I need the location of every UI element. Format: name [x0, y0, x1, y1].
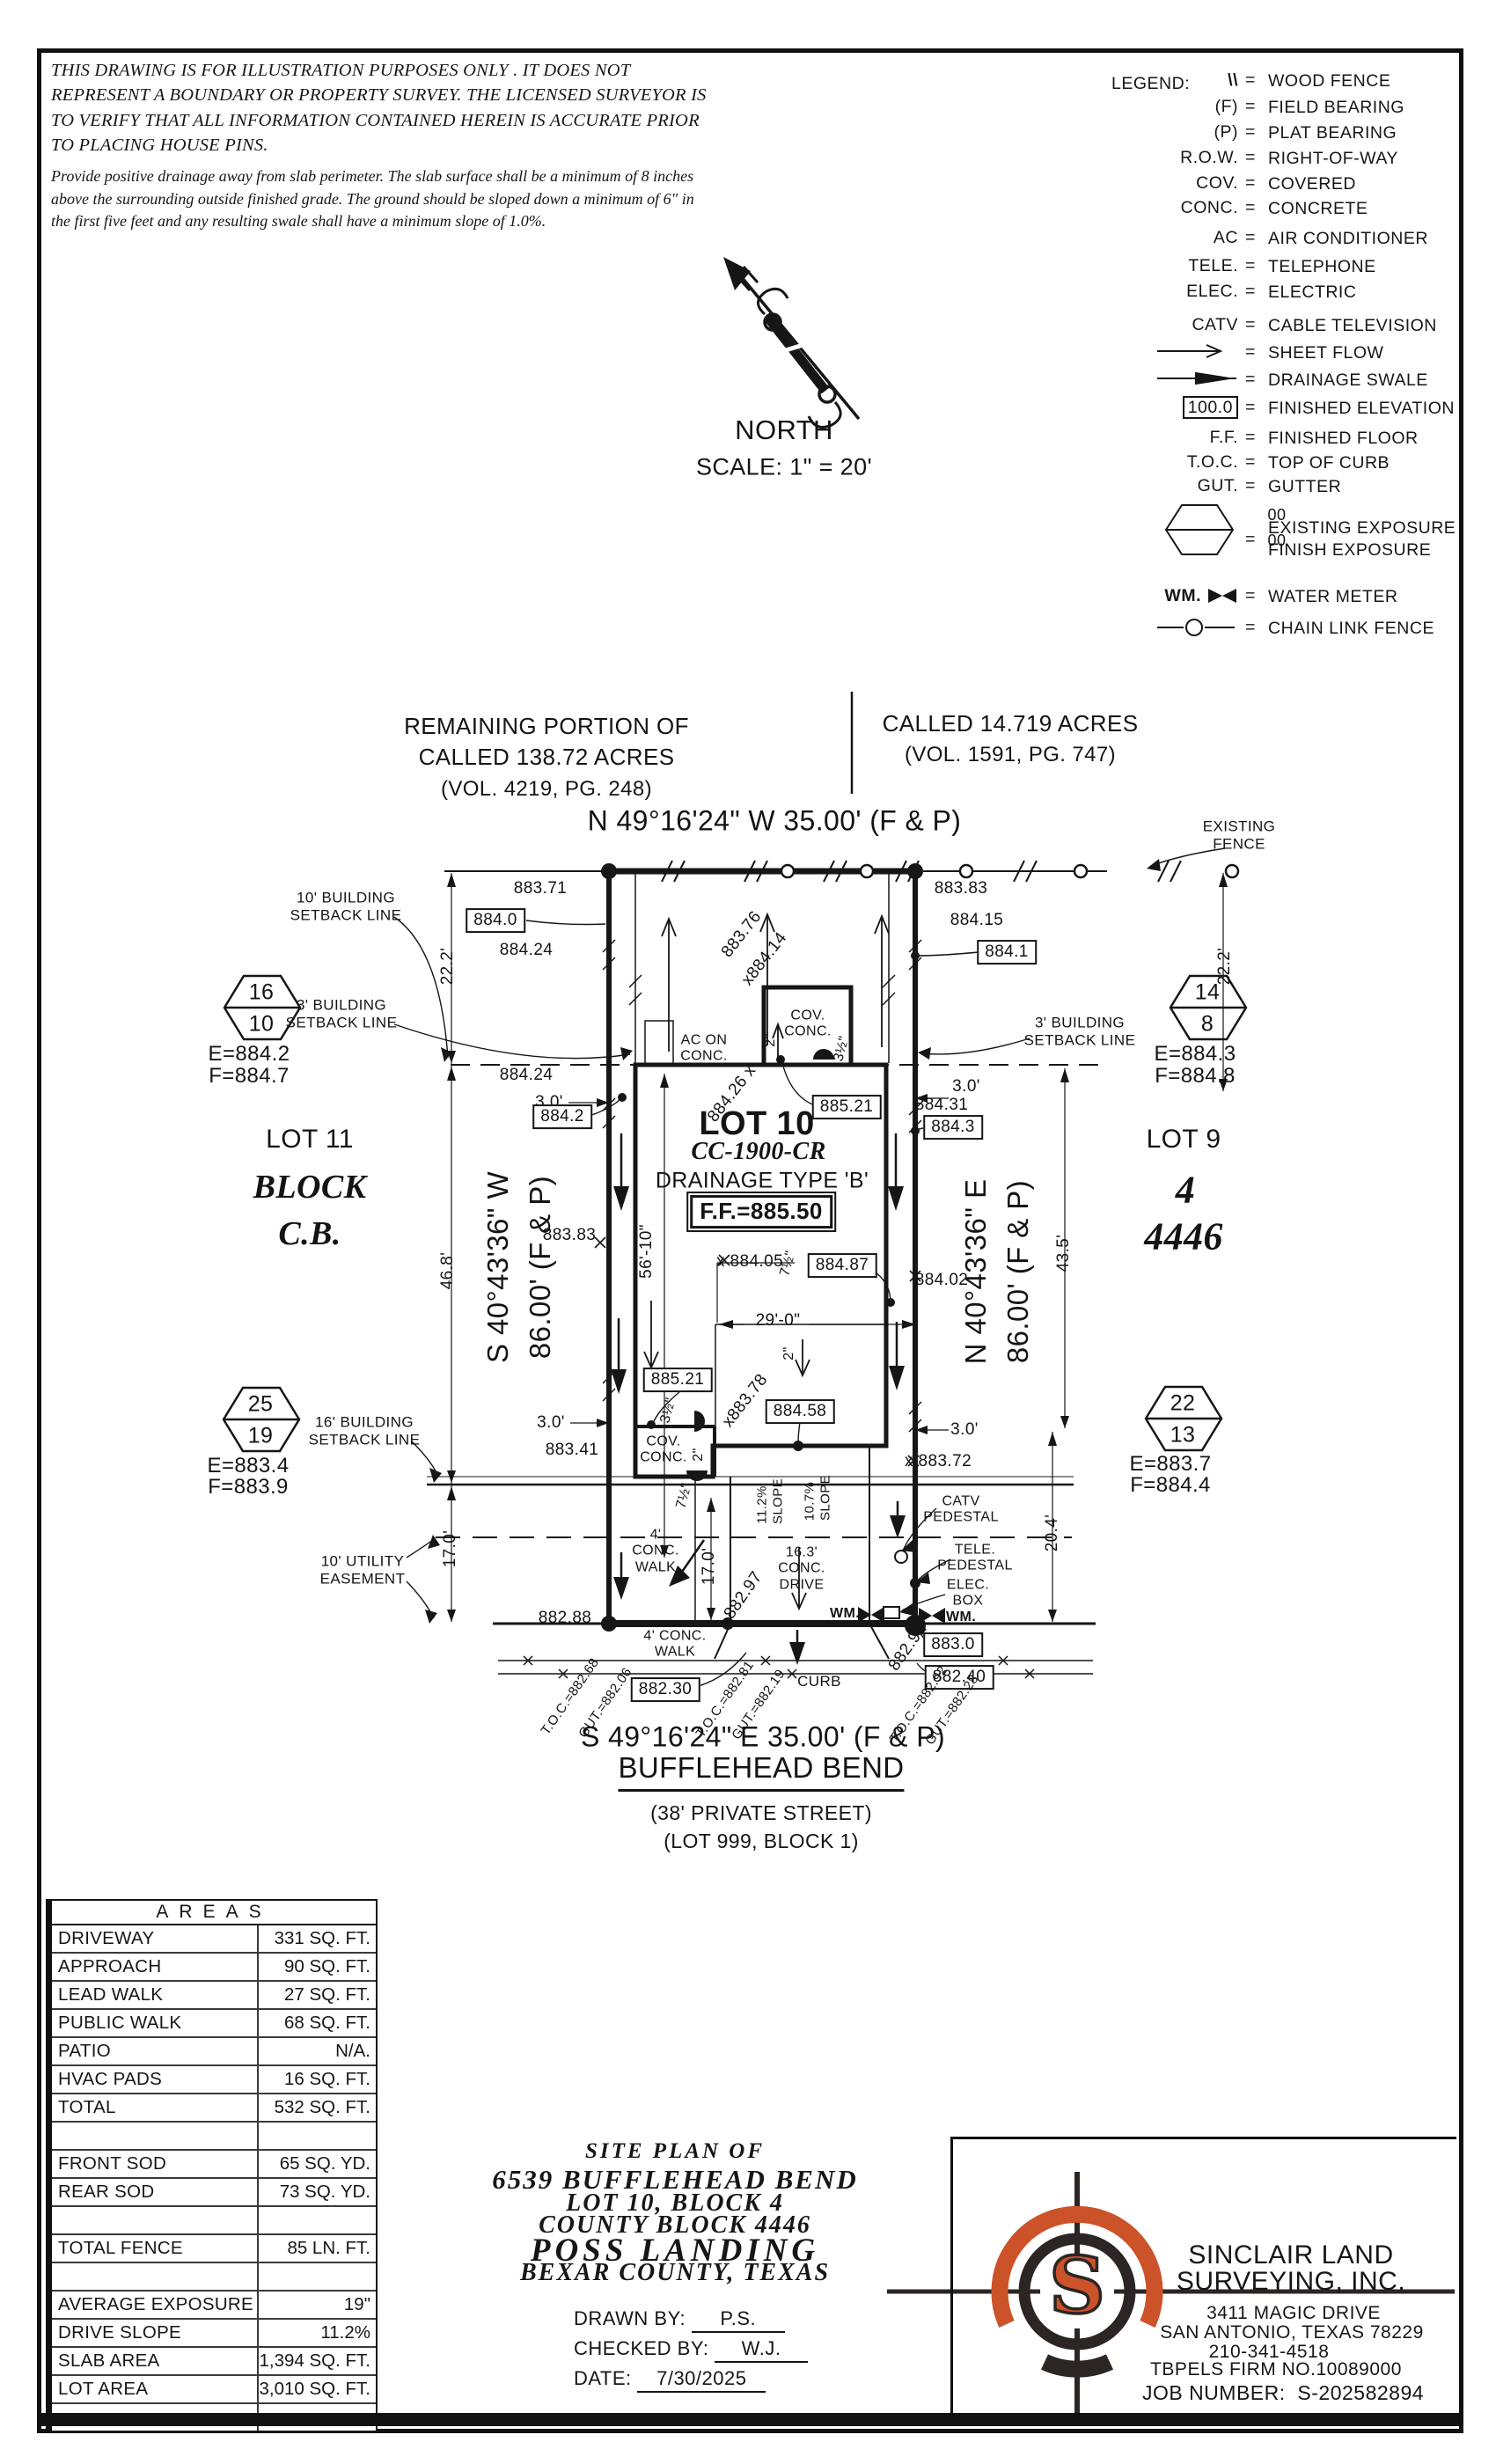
areas-row: PATION/A.	[52, 2038, 376, 2066]
street-lot-block: (LOT 999, BLOCK 1)	[664, 1830, 859, 1852]
legend-row: \\=WOOD FENCE	[1104, 70, 1458, 93]
areas-row-value: 11.2%	[259, 2320, 376, 2346]
drainage-swale-icon	[1155, 370, 1238, 386]
legend-row: AC=AIR CONDITIONER	[1104, 228, 1458, 251]
plan-label: 17.0'	[441, 1530, 460, 1568]
context-called: (VOL. 1591, PG. 747)	[905, 743, 1116, 767]
areas-table-title: AREAS	[52, 1901, 376, 1925]
plan-label: 884.02	[915, 1271, 969, 1290]
areas-row-value	[259, 2123, 376, 2149]
plan-label: 883.83	[543, 1226, 597, 1245]
neighbor-right-lot: LOT 9	[1147, 1125, 1221, 1155]
lot-ff: F.F.=885.50	[690, 1195, 832, 1228]
checked-by-value: W.J.	[715, 2337, 808, 2363]
areas-row: AVERAGE EXPOSURE19"	[52, 2292, 376, 2320]
areas-row-label: PUBLIC WALK	[52, 2010, 259, 2036]
areas-row-value: 27 SQ. FT.	[259, 1982, 376, 2008]
exposure-nw-bottom: 10	[249, 1012, 275, 1038]
context-called: CALLED 14.719 ACRES	[883, 711, 1139, 737]
surveyor-name: SINCLAIR LAND	[1188, 2240, 1393, 2270]
chain-link-fence-icon	[1155, 619, 1238, 636]
areas-row-label: TOTAL FENCE	[52, 2235, 259, 2262]
plan-label: SLOPE	[818, 1475, 832, 1521]
plan-label: 17.0'	[700, 1548, 719, 1586]
areas-row	[52, 2123, 376, 2151]
logo-letter: S	[1049, 2240, 1105, 2331]
areas-row-label: DRIVE SLOPE	[52, 2320, 259, 2346]
disclaimer: THIS DRAWING IS FOR ILLUSTRATION PURPOSE…	[51, 58, 707, 233]
areas-row	[52, 2263, 376, 2292]
areas-row-label: REAR SOD	[52, 2179, 259, 2205]
areas-row-label: LEAD WALK	[52, 1982, 259, 2008]
legend-row: F.F.=FINISHED FLOOR	[1104, 428, 1458, 451]
exposure-se-top: 22	[1170, 1391, 1196, 1417]
lot-drainage: DRAINAGE TYPE 'B'	[656, 1169, 869, 1194]
areas-row-value: 85 LN. FT.	[259, 2235, 376, 2262]
areas-row-value	[259, 2207, 376, 2233]
plan-label: 882.88	[539, 1609, 592, 1628]
plan-label: 883.83	[935, 879, 988, 898]
plan-label: COV. CONC.	[640, 1434, 687, 1467]
north-arrow-icon	[723, 257, 859, 427]
legend-row: CONC.=CONCRETE	[1104, 198, 1458, 221]
site-plan-page: NORTHSCALE: 1" = 20'REMAINING PORTION OF…	[0, 0, 1496, 2464]
areas-row-label: SLAB AREA	[52, 2348, 259, 2374]
plan-label: 56'-10"	[637, 1224, 656, 1279]
legend-row: 100.0=FINISHED ELEVATION	[1104, 398, 1458, 421]
areas-row: TOTAL FENCE85 LN. FT.	[52, 2235, 376, 2263]
context-remaining: REMAINING PORTION OF	[404, 714, 689, 740]
areas-row-value: 331 SQ. FT.	[259, 1925, 376, 1952]
drawn-by-value: P.S.	[692, 2307, 785, 2333]
areas-row-value: 65 SQ. YD.	[259, 2151, 376, 2177]
street-type: (38' PRIVATE STREET)	[650, 1801, 872, 1824]
legend-row: =SHEET FLOW	[1104, 342, 1458, 365]
scale-label: SCALE: 1" = 20'	[696, 453, 872, 480]
title-line: SITE PLAN OF	[585, 2139, 765, 2164]
plan-label: 2"	[691, 1448, 707, 1461]
exposure-se-f: F=884.4	[1130, 1473, 1211, 1498]
plan-label: 16.3' CONC. DRIVE	[778, 1544, 825, 1593]
plan-label: 3.0'	[952, 1077, 980, 1096]
bearing-north: N 49°16'24" W 35.00' (F & P)	[588, 805, 962, 838]
plan-label: 884.0	[466, 908, 525, 933]
neighbor-right-block: 4	[1176, 1169, 1195, 1214]
plan-label: 4' CONC. WALK	[632, 1527, 679, 1575]
exposure-se-bottom: 13	[1170, 1423, 1196, 1448]
areas-row-value: N/A.	[259, 2038, 376, 2064]
plan-label: 3' BUILDING SETBACK LINE	[1024, 1014, 1136, 1048]
legend-row: COV.=COVERED	[1104, 173, 1458, 196]
areas-row-value: 1,394 SQ. FT.	[259, 2348, 376, 2374]
areas-row-label: TOTAL	[52, 2094, 259, 2121]
areas-row-value: 19"	[259, 2292, 376, 2318]
plan-label: 11.2%	[754, 1485, 769, 1523]
areas-row: APPROACH90 SQ. FT.	[52, 1954, 376, 1982]
areas-row: PUBLIC WALK68 SQ. FT.	[52, 2010, 376, 2038]
neighbor-left-block: BLOCK	[253, 1169, 367, 1207]
catv-pedestal-icon	[895, 1551, 907, 1563]
exposure-sw-bottom: 19	[248, 1424, 274, 1449]
areas-row: FRONT SOD65 SQ. YD.	[52, 2151, 376, 2179]
exposure-ne-f: F=884.8	[1155, 1064, 1236, 1089]
plan-label: 884.87	[808, 1253, 877, 1278]
plan-label: 16' BUILDING SETBACK LINE	[309, 1413, 421, 1448]
plan-label: 20.4'	[1043, 1514, 1062, 1552]
areas-row-value: 73 SQ. YD.	[259, 2179, 376, 2205]
areas-table-body: DRIVEWAY331 SQ. FT.APPROACH90 SQ. FT.LEA…	[52, 1925, 376, 2431]
plan-label: 3.0'	[950, 1420, 979, 1440]
context-remaining: CALLED 138.72 ACRES	[419, 744, 675, 771]
street-name: BUFFLEHEAD BEND	[618, 1751, 904, 1792]
surveyor-name: SURVEYING, INC.	[1177, 2267, 1405, 2297]
context-remaining: (VOL. 4219, PG. 248)	[441, 777, 652, 802]
areas-row: LOT AREA3,010 SQ. FT.	[52, 2376, 376, 2404]
surveyor-block-border-top	[950, 2137, 1456, 2139]
areas-row-label	[52, 2207, 259, 2233]
plan-label: CATV PEDESTAL	[923, 1494, 999, 1527]
plan-label: 43.5'	[1054, 1235, 1074, 1272]
legend-row: ELEC.=ELECTRIC	[1104, 282, 1458, 304]
plan-label: 884.58	[766, 1399, 835, 1424]
areas-row: LEAD WALK27 SQ. FT.	[52, 1982, 376, 2010]
plan-label: 885.21	[812, 1095, 882, 1119]
areas-row: DRIVE SLOPE11.2%	[52, 2320, 376, 2348]
water-meter-icon	[1206, 587, 1238, 605]
areas-table: AREAS DRIVEWAY331 SQ. FT.APPROACH90 SQ. …	[46, 1899, 378, 2432]
plan-label: 10' BUILDING SETBACK LINE	[290, 889, 402, 923]
legend: LEGEND: \\=WOOD FENCE (F)=FIELD BEARING …	[1104, 62, 1458, 642]
exposure-ne-top: 14	[1195, 980, 1221, 1006]
exposure-nw-e: E=884.2	[209, 1042, 290, 1067]
north-label: NORTH	[735, 414, 833, 446]
plan-label: x 883.72	[905, 1452, 972, 1471]
plan-label: SLOPE	[770, 1478, 785, 1524]
areas-row-label	[52, 2263, 259, 2290]
areas-row	[52, 2207, 376, 2235]
areas-row-value: 16 SQ. FT.	[259, 2066, 376, 2093]
plan-label: 29'-0"	[756, 1311, 801, 1331]
bearing-south: S 49°16'24" E 35.00' (F & P)	[581, 1721, 945, 1754]
exposure-ne-bottom: 8	[1201, 1012, 1214, 1038]
areas-row-label: AVERAGE EXPOSURE	[52, 2292, 259, 2318]
plan-label: x 884.05	[716, 1252, 783, 1272]
existing-fence-label: EXISTING FENCE	[1203, 818, 1276, 852]
plan-label: 10.7%	[802, 1482, 817, 1522]
checked-by-label: CHECKED BY:	[574, 2337, 708, 2360]
legend-row: CATV=CABLE TELEVISION	[1104, 315, 1458, 338]
plan-label: CURB	[797, 1673, 841, 1690]
exposure-sw-top: 25	[248, 1392, 274, 1418]
plan-label: AC ON CONC.	[680, 1033, 728, 1066]
disclaimer-para1: THIS DRAWING IS FOR ILLUSTRATION PURPOSE…	[51, 58, 707, 158]
areas-row-label: DRIVEWAY	[52, 1925, 259, 1952]
plan-label: 10' UTILITY EASEMENT	[320, 1552, 406, 1587]
wood-fence-icon: \\	[1104, 70, 1238, 91]
job-number: JOB NUMBER: S-202582894	[1142, 2381, 1424, 2405]
elec-box-icon	[884, 1607, 899, 1618]
exposure-sw-f: F=883.9	[208, 1475, 289, 1500]
areas-row-label	[52, 2123, 259, 2149]
exposure-nw-f: F=884.7	[209, 1064, 290, 1089]
plan-label: COV. CONC.	[784, 1008, 832, 1041]
exposure-nw-top: 16	[249, 980, 275, 1006]
plan-label: 884.24	[500, 941, 554, 960]
plan-label: 884.24	[500, 1066, 554, 1085]
drawn-by-label: DRAWN BY:	[574, 2307, 686, 2330]
plan-label: 884.2	[532, 1104, 592, 1129]
plan-label: 2"	[763, 1033, 779, 1046]
plan-label: 46.8'	[438, 1252, 458, 1290]
signature-block: DRAWN BY: P.S. CHECKED BY: W.J. DATE: 7/…	[574, 2307, 808, 2397]
title-line: BEXAR COUNTY, TEXAS	[520, 2259, 830, 2287]
date-label: DATE:	[574, 2367, 632, 2390]
plan-label: 22.2'	[438, 948, 458, 986]
plan-label: 884.31	[915, 1096, 969, 1115]
exposure-hexagon-icon: 00 00	[1161, 502, 1238, 558]
legend-row: (F)=FIELD BEARING	[1104, 97, 1458, 120]
plan-label: 3.0'	[537, 1413, 565, 1433]
surveyor-firm: TBPELS FIRM NO.10089000	[1150, 2359, 1402, 2380]
areas-row: DRIVEWAY331 SQ. FT.	[52, 1925, 376, 1954]
plan-label: 884.1	[977, 940, 1037, 964]
plan-label: 883.0	[923, 1632, 983, 1657]
date-value: 7/30/2025	[637, 2367, 766, 2393]
legend-row: =DRAINAGE SWALE	[1104, 370, 1458, 392]
plan-label: ELEC. BOX	[947, 1578, 989, 1610]
plan-label: 3' BUILDING SETBACK LINE	[286, 996, 398, 1030]
areas-row: HVAC PADS16 SQ. FT.	[52, 2066, 376, 2094]
neighbor-right-county-block: 4446	[1144, 1215, 1223, 1260]
areas-row-label: LOT AREA	[52, 2376, 259, 2402]
legend-row: GUT.=GUTTER	[1104, 476, 1458, 499]
areas-row-label: HVAC PADS	[52, 2066, 259, 2093]
areas-row-label: PATIO	[52, 2038, 259, 2064]
plan-label: 4' CONC. WALK	[643, 1629, 706, 1661]
neighbor-left-lot: LOT 11	[266, 1125, 354, 1155]
surveyor-block-border-left	[950, 2137, 953, 2416]
legend-row: TELE.=TELEPHONE	[1104, 256, 1458, 279]
plan-label: 882.30	[631, 1677, 700, 1702]
tele-pedestal-icon	[910, 1578, 920, 1588]
surveyor-address: SAN ANTONIO, TEXAS 78229	[1160, 2322, 1424, 2343]
plan-label: 885.21	[643, 1368, 713, 1392]
areas-row-value: 90 SQ. FT.	[259, 1954, 376, 1980]
plan-label: 884.3	[923, 1115, 983, 1140]
legend-row: WM. =WATER METER	[1104, 586, 1458, 609]
areas-row: TOTAL532 SQ. FT.	[52, 2094, 376, 2123]
legend-row: T.O.C.=TOP OF CURB	[1104, 452, 1458, 475]
lot-plan-code: CC-1900-CR	[691, 1138, 825, 1166]
legend-row: (P)=PLAT BEARING	[1104, 122, 1458, 145]
finished-elevation-icon: 100.0	[1183, 396, 1238, 419]
areas-row-value	[259, 2263, 376, 2290]
exposure-ne-e: E=884.3	[1155, 1042, 1236, 1067]
plan-label: 2"	[781, 1346, 797, 1360]
areas-row-value: 68 SQ. FT.	[259, 2010, 376, 2036]
plan-label: WM.	[946, 1610, 976, 1625]
areas-row: SLAB AREA1,394 SQ. FT.	[52, 2348, 376, 2376]
legend-row: =CHAIN LINK FENCE	[1104, 618, 1458, 641]
plan-label: TELE. PEDESTAL	[937, 1543, 1013, 1575]
surveyor-address: 3411 MAGIC DRIVE	[1206, 2303, 1381, 2324]
areas-row-value: 3,010 SQ. FT.	[259, 2376, 376, 2402]
plan-label: 884.15	[950, 911, 1004, 930]
plan-label: WM.	[830, 1606, 860, 1622]
disclaimer-para2: Provide positive drainage away from slab…	[51, 165, 707, 233]
areas-row-label: APPROACH	[52, 1954, 259, 1980]
legend-row: R.O.W.=RIGHT-OF-WAY	[1104, 148, 1458, 171]
areas-row-label: FRONT SOD	[52, 2151, 259, 2177]
areas-row: REAR SOD73 SQ. YD.	[52, 2179, 376, 2207]
neighbor-left-block-value: C.B.	[278, 1215, 341, 1254]
bottom-border-bar	[37, 2413, 1459, 2426]
plan-label: 883.71	[514, 879, 568, 898]
areas-row-value: 532 SQ. FT.	[259, 2094, 376, 2121]
bearing-west: S 40°43'36" W 86.00' (F & P)	[477, 1171, 561, 1363]
plan-label: 883.41	[546, 1441, 599, 1460]
sheet-flow-icon	[1155, 343, 1238, 359]
legend-row: 00 00 = EXISTING EXPOSURE FINISH EXPOSUR…	[1104, 516, 1458, 572]
